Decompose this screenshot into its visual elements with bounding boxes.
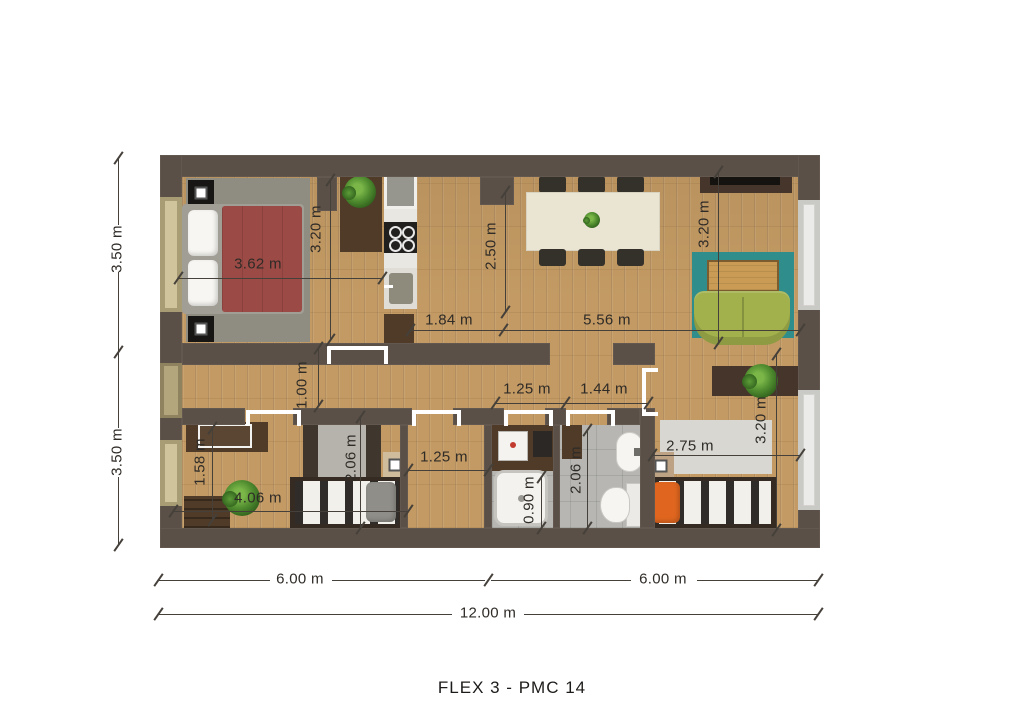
dim-line-entry-depth [212,428,213,520]
grey-pillow [366,482,396,522]
dim-line-12m-a [158,614,452,615]
plant-icon [744,364,778,398]
floor-plan-canvas: 3.62 m 3.20 m 2.50 m 1.84 m 5.56 m 3.20 … [0,0,1024,724]
dim-line-shower-width [541,477,542,528]
dim-line-laundry-width [495,403,565,404]
lamp-icon [655,459,668,472]
dim-line-bedroom3-rug [652,455,800,456]
kitchen-sink [384,268,417,309]
washer-dial-icon [510,442,516,448]
dim-bedroom3-depth: 3.20 m [753,396,770,444]
dim-line-6m-right-a [491,580,631,581]
dim-shower-width: 0.90 m [521,476,538,524]
table-plant-icon [584,212,600,228]
dim-line-dining-depth [505,192,506,312]
dim-line-wc-depth [587,430,588,528]
dim-line-kitchen-width [410,330,503,331]
entrance-door [160,363,182,418]
dining-chair [539,249,566,266]
dim-line-left-upper-a [118,158,119,225]
kitchen-counter [384,253,417,268]
burner-icon [389,239,402,252]
dim-dining-depth: 2.50 m [483,222,500,270]
bed-pillow [188,260,218,306]
fridge [384,172,417,209]
dim-left-upper: 3.50 m [109,225,126,273]
dim-closet-width: 1.25 m [420,449,468,466]
laundry-basket [533,431,552,457]
lamp-icon [195,323,208,336]
orange-pillow [652,482,680,523]
dim-line-closet-width [408,470,488,471]
bedroom2-window [160,440,182,506]
dim-laundry-width: 1.25 m [503,381,551,398]
dining-chair [539,176,566,193]
dining-chair [617,249,644,266]
dim-line-12m-b [524,614,818,615]
dim-line-6m-right-b [697,580,818,581]
bedroom2-door [246,410,301,426]
plan-title: FLEX 3 - PMC 14 [438,678,586,698]
dim-line-hallway-width [318,348,319,406]
washing-machine [498,431,528,461]
single-bed [646,477,776,528]
plant-icon [344,176,376,208]
dim-line-6m-left-b [332,580,485,581]
apartment-floor-plan: 3.62 m 3.20 m 2.50 m 1.84 m 5.56 m 3.20 … [0,0,1024,724]
living-window [798,200,820,310]
sofa-seam [742,297,744,337]
dim-line-left-lower-b [118,477,119,545]
cooktop [384,222,417,253]
dim-line-bedroom1-width [178,278,382,279]
faucet-icon [384,285,393,288]
sofa [694,291,790,345]
toilet [600,483,640,525]
dim-line-living-width [503,330,800,331]
toilet-bowl [600,487,630,523]
dim-bedroom1-depth: 3.20 m [308,205,325,253]
dim-line-bedroom3-depth [776,354,777,530]
wall-stub-kitchen [480,177,514,205]
dim-line-bedroom1-depth [330,180,331,340]
bedroom1-nightstand-top [188,180,214,206]
dim-entry-depth: 1.58 m [192,438,209,486]
dim-bedroom2-width: 4.06 m [234,490,282,507]
dim-wc-width: 1.44 m [580,381,628,398]
tv-icon [710,176,780,185]
dim-line-left-upper-b [118,272,119,352]
burner-icon [402,226,415,239]
bed-pillow [188,210,218,256]
lamp-icon [195,187,208,200]
dim-bedroom2-depth: 2.06 m [343,434,360,482]
bedroom1-nightstand-bottom [188,316,214,342]
burner-icon [402,239,415,252]
dim-hallway-width: 1.00 m [294,361,311,409]
dim-left-lower: 3.50 m [109,428,126,476]
wall-bottom [160,528,820,548]
dining-chair [617,176,644,193]
closet-door [412,410,461,426]
dim-line-wc-width [565,403,648,404]
dim-kitchen-width: 1.84 m [425,312,473,329]
dining-chair [578,249,605,266]
dim-bedroom3-rug: 2.75 m [666,438,714,455]
wall-mid-right [613,343,655,365]
burner-icon [389,226,402,239]
dim-line-left-lower-a [118,352,119,428]
wall-hall-bottom-2 [293,408,412,425]
bedroom2-bed [290,477,404,528]
dim-wc-depth: 2.06 m [568,446,585,494]
dim-6m-left: 6.00 m [276,571,324,588]
dim-line-6m-left-a [158,580,270,581]
wall-closet-right [484,425,492,528]
dining-chair [578,176,605,193]
bathroom-sink [616,432,643,472]
dim-living-depth: 3.20 m [696,200,713,248]
dim-12m: 12.00 m [460,605,516,622]
kitchen-counter [384,209,417,222]
dim-line-living-depth [718,172,719,343]
bedroom1-window [160,197,182,312]
bedroom1-door [327,346,388,364]
dim-living-width: 5.56 m [583,312,631,329]
sink-basin [389,273,413,304]
dim-6m-right: 6.00 m [639,571,687,588]
wall-bedroom3-left [640,408,655,528]
dim-line-bedroom2-width [173,511,408,512]
dim-bedroom1-width: 3.62 m [234,256,282,273]
wall-laundry-wc [553,425,560,528]
laundry-door [504,410,553,426]
